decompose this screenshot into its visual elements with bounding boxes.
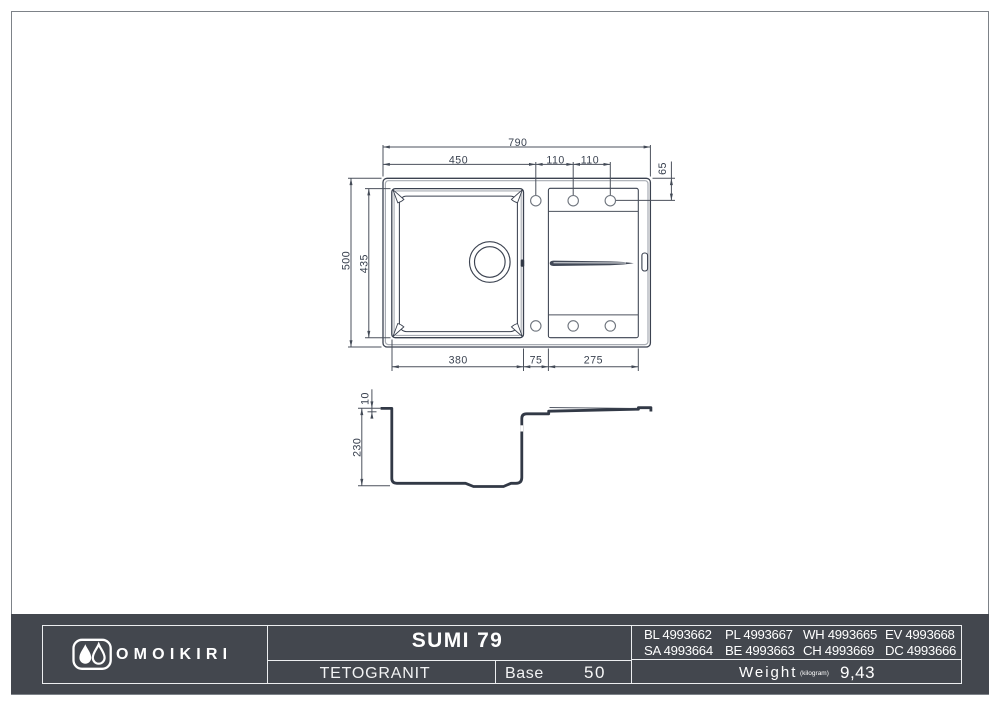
svg-text:230: 230 xyxy=(351,438,363,457)
svg-text:110: 110 xyxy=(581,154,599,166)
svg-text:500: 500 xyxy=(341,251,353,270)
svg-text:450: 450 xyxy=(449,154,468,166)
svg-text:380: 380 xyxy=(449,355,468,367)
svg-text:275: 275 xyxy=(584,355,603,367)
svg-text:65: 65 xyxy=(657,162,669,175)
svg-text:435: 435 xyxy=(358,254,370,273)
svg-text:790: 790 xyxy=(508,137,527,149)
svg-text:10: 10 xyxy=(360,392,372,405)
svg-text:75: 75 xyxy=(530,355,543,367)
svg-text:110: 110 xyxy=(546,154,564,166)
